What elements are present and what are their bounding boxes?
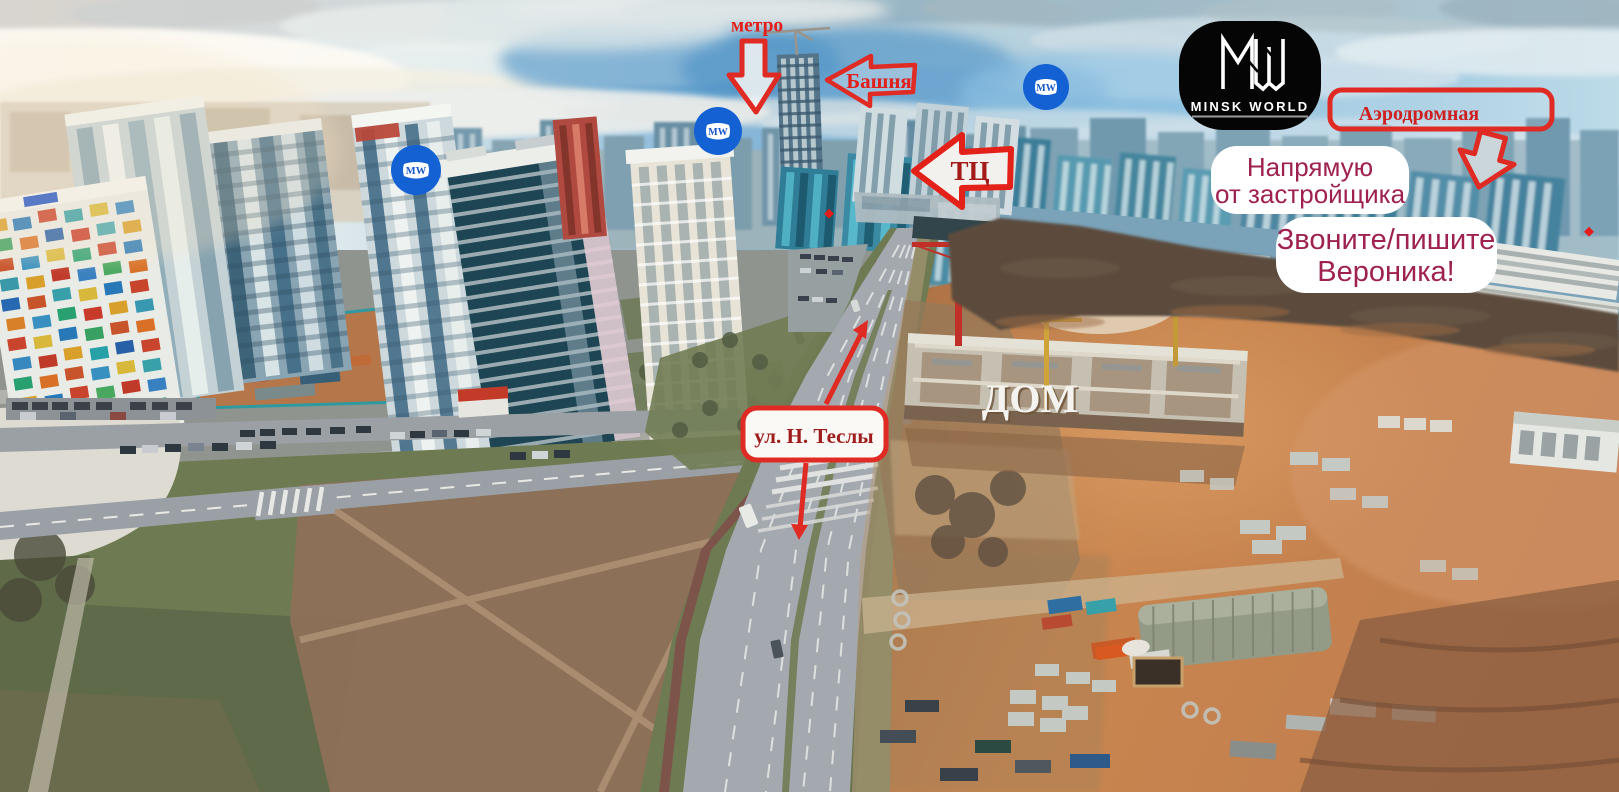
svg-text:MW: MW (1036, 83, 1055, 94)
svg-text:Аэродромная: Аэродромная (1359, 103, 1480, 125)
svg-text:метро: метро (731, 16, 783, 37)
svg-text:Звоните/пишите: Звоните/пишите (1277, 224, 1496, 256)
svg-text:ДОМ: ДОМ (982, 376, 1078, 421)
svg-text:MINSK WORLD: MINSK WORLD (1191, 99, 1310, 114)
svg-text:MW: MW (708, 127, 727, 138)
svg-text:Башня: Башня (846, 69, 912, 93)
svg-text:от застройщика: от застройщика (1215, 179, 1406, 209)
svg-text:ул. Н. Теслы: ул. Н. Теслы (754, 424, 873, 448)
svg-text:Напрямую: Напрямую (1247, 152, 1373, 182)
svg-text:Вероника!: Вероника! (1317, 256, 1454, 288)
svg-text:MW: MW (406, 166, 427, 177)
svg-text:ТЦ: ТЦ (950, 156, 989, 186)
